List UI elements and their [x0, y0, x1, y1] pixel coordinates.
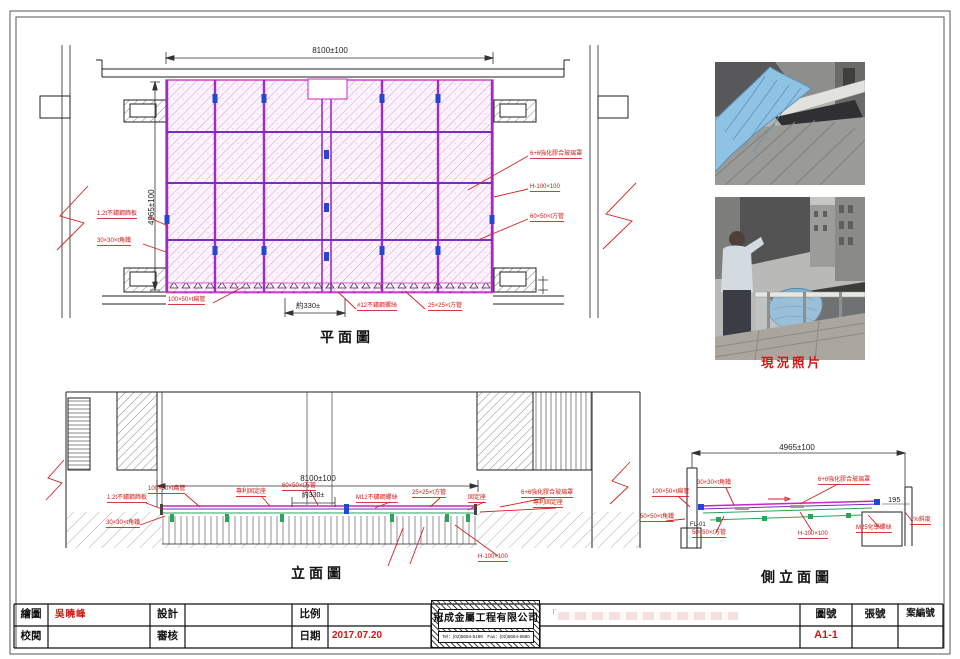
project-title-quote: 「: [548, 610, 556, 618]
side-dim-width: 4965±100: [779, 444, 815, 452]
drawing-no-value: A1-1: [800, 630, 852, 641]
site-photo-1: [715, 62, 865, 185]
side-label-1: 100×50×t扁管: [652, 489, 689, 497]
elev-label-5: 25×25×t方管: [412, 490, 446, 498]
elevation-dim-gap: 約330±: [302, 492, 325, 499]
drawing-sheet: 8100±100 4965±100 約330± 6+6強化膠合玻璃罩 H-100…: [0, 0, 960, 659]
elev-label-2: 專利固定座: [236, 489, 266, 497]
side-label-6: H-100×100: [798, 531, 828, 539]
elev-label-1: 100×50×t扁管: [148, 486, 185, 494]
case-no-label: 案編號: [898, 609, 943, 619]
company-contact: Tel：(02)8684-6189 Fax：(02)8684-6680: [442, 635, 530, 640]
elevation-dim-width: 8100±100: [300, 475, 336, 483]
plan-label-sq-tube: 25×25×t方管: [428, 303, 462, 311]
elev-label-0: 1.2t不鏽鋼飾板: [107, 495, 147, 503]
plan-linework: [40, 45, 636, 318]
plan-label-glass: 6+6強化膠合玻璃罩: [530, 151, 582, 159]
plan-label-angle: 30×30×t角鐵: [97, 238, 131, 246]
plan-dim-height: 4965±100: [148, 189, 156, 225]
drawn-by-value: 吳曉峰: [55, 610, 87, 620]
photo2-scene: [715, 197, 865, 360]
side-label-8: 1%斜度: [910, 517, 931, 525]
elev-label-7: 6+6強化膠合玻璃罩: [521, 490, 573, 498]
plan-label-flat-tube: 100×50×t扁管: [168, 297, 205, 305]
plan-label-tube: 60×50×t方管: [530, 214, 564, 222]
photo1-scene: [715, 62, 865, 185]
company-name: 冠成金屬工程有限公司: [434, 614, 539, 624]
side-dim-height: 195: [888, 496, 901, 504]
plan-dim-gap: 約330±: [296, 302, 320, 310]
side-label-fl01: FL-01: [690, 522, 706, 528]
side-label-4: 50×50×t方管: [692, 530, 726, 538]
side-label-2: 50×50×t角鐵: [640, 514, 674, 522]
elevation-title: 立面圖: [291, 566, 345, 580]
drawn-by-label: 繪圖: [14, 609, 48, 620]
side-label-7: M25化學螺絲: [856, 525, 892, 533]
plan-label-ss-plate: 1.2t不鏽鋼飾板: [97, 211, 137, 219]
sheet-no-label: 張號: [852, 609, 898, 620]
date-value: 2017.07.20: [332, 631, 382, 641]
plan-label-hbeam: H-100×100: [530, 184, 560, 192]
side-label-5: 6+6強化膠合玻璃罩: [818, 477, 870, 485]
elev-label-10: H-100×100: [478, 554, 508, 562]
side-elevation-title: 側立面圖: [761, 570, 833, 584]
elev-label-6: 固定座: [468, 495, 486, 503]
plan-title: 平面圖: [320, 330, 374, 344]
elevation-linework: [46, 392, 640, 566]
review-label: 審核: [150, 631, 185, 642]
site-photo-2: [715, 197, 865, 360]
date-label: 日期: [292, 631, 328, 642]
scale-label: 比例: [292, 609, 328, 620]
company-stamp: 冠成金屬工程有限公司 Tel：(02)8684-6189 Fax：(02)868…: [431, 600, 540, 648]
elev-label-4: M12不鏽鋼螺絲: [356, 495, 398, 503]
side-label-0: 30×30×t角鐵: [697, 480, 731, 488]
elev-label-9: 30×30×t角鐵: [106, 520, 140, 528]
checked-label: 校閱: [14, 631, 48, 642]
plan-dim-width: 8100±100: [312, 47, 348, 55]
photos-caption: 現況照片: [761, 357, 823, 370]
elev-label-8: 專利固定座: [533, 500, 563, 508]
design-label: 設計: [150, 609, 185, 620]
elev-label-3: 60×50×t方管: [282, 483, 316, 491]
plan-label-screw: #12不鏽鋼螺絲: [357, 303, 397, 311]
side-dimensions: [692, 451, 910, 504]
drawing-no-label: 圖號: [800, 609, 852, 620]
project-title-faint-text: [558, 612, 738, 620]
